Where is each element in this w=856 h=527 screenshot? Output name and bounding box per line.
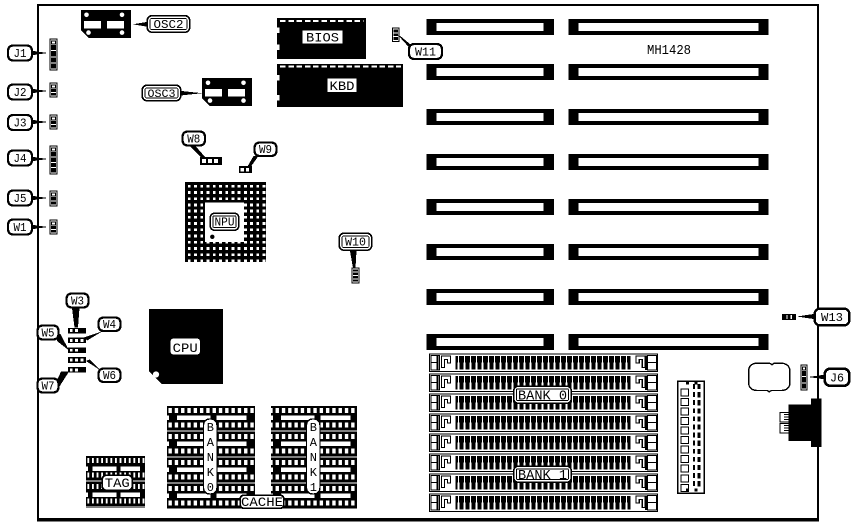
svg-text:W10: W10	[345, 237, 366, 250]
svg-text:TAG: TAG	[105, 476, 130, 491]
svg-text:K: K	[207, 466, 215, 480]
svg-text:W5: W5	[42, 327, 55, 340]
svg-text:W13: W13	[821, 311, 843, 325]
svg-text:NPU: NPU	[215, 217, 235, 230]
svg-text:OSC3: OSC3	[148, 89, 176, 101]
svg-text:K: K	[310, 466, 318, 480]
svg-text:J4: J4	[14, 153, 27, 166]
svg-text:BIOS: BIOS	[306, 31, 339, 45]
svg-text:1: 1	[310, 481, 317, 495]
svg-text:N: N	[207, 451, 214, 465]
svg-text:W1: W1	[14, 222, 27, 235]
svg-text:OSC2: OSC2	[154, 19, 184, 32]
svg-text:KBD: KBD	[330, 80, 355, 94]
svg-text:J3: J3	[14, 117, 27, 130]
svg-text:W7: W7	[42, 380, 55, 393]
svg-text:A: A	[310, 436, 318, 450]
svg-text:B: B	[207, 421, 214, 435]
svg-text:J2: J2	[14, 87, 27, 100]
svg-text:BANK 0: BANK 0	[518, 389, 567, 404]
svg-text:J6: J6	[830, 371, 844, 385]
svg-text:MH1428: MH1428	[647, 44, 691, 59]
svg-text:W8: W8	[187, 133, 200, 146]
svg-text:CACHE: CACHE	[241, 495, 283, 510]
svg-text:BANK 1: BANK 1	[518, 469, 567, 484]
svg-text:W9: W9	[259, 144, 272, 157]
svg-text:W3: W3	[71, 295, 84, 308]
svg-text:0: 0	[207, 481, 214, 495]
svg-text:J5: J5	[14, 193, 27, 206]
svg-text:A: A	[207, 436, 215, 450]
svg-text:N: N	[310, 451, 317, 465]
svg-text:W6: W6	[103, 370, 116, 383]
svg-text:CPU: CPU	[173, 342, 198, 356]
svg-text:B: B	[310, 421, 317, 435]
svg-text:W11: W11	[415, 46, 436, 59]
svg-text:J1: J1	[14, 48, 27, 61]
svg-text:W4: W4	[103, 319, 116, 332]
